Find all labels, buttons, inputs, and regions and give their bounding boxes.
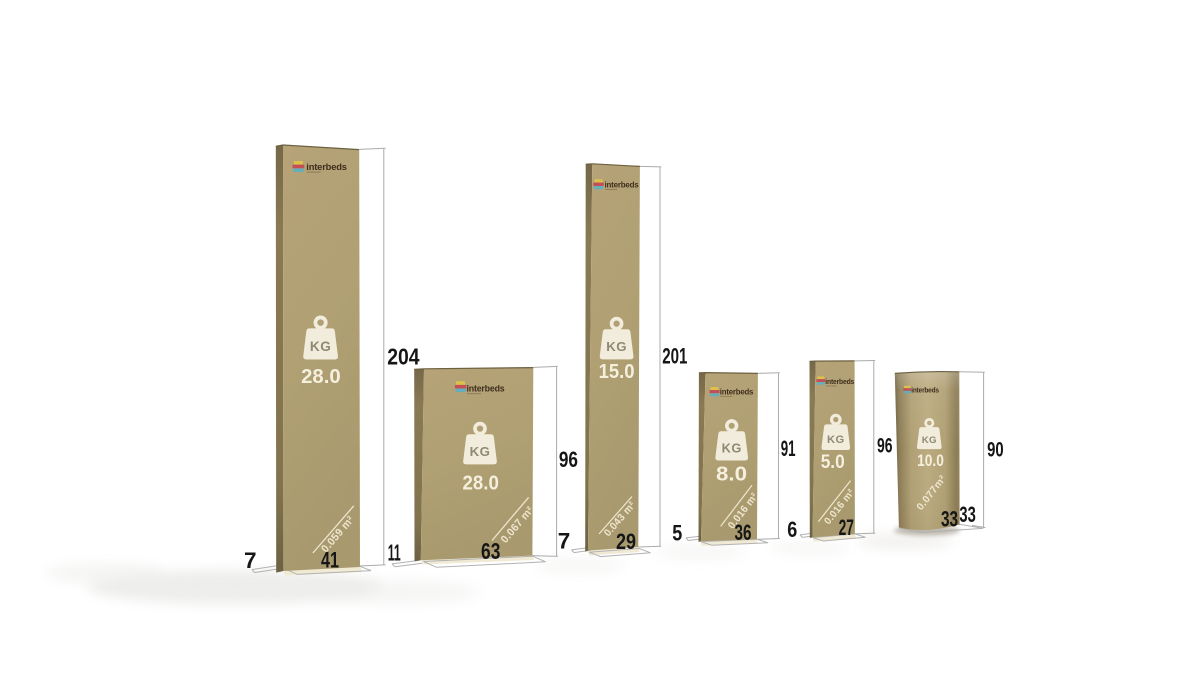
svg-text:6: 6 [787,517,797,542]
svg-text:33: 33 [959,502,975,527]
svg-text:interbeds: interbeds [911,388,939,395]
svg-text:interbeds: interbeds [467,383,505,394]
svg-text:7: 7 [244,548,257,573]
svg-text:201: 201 [662,344,687,369]
svg-text:5: 5 [672,521,682,546]
svg-text:interbeds: interbeds [825,377,854,386]
svg-text:11: 11 [388,540,401,566]
svg-text:interbeds: interbeds [605,181,640,190]
svg-text:96: 96 [877,434,893,458]
svg-text:27: 27 [839,515,854,540]
svg-text:15.0: 15.0 [599,361,635,383]
svg-text:interbeds: interbeds [306,162,347,172]
svg-text:90: 90 [987,437,1004,461]
svg-text:29: 29 [616,529,636,554]
svg-text:7: 7 [558,529,571,554]
svg-text:204: 204 [387,343,419,369]
svg-text:interbeds: interbeds [720,387,754,396]
svg-text:33: 33 [941,507,958,532]
svg-text:8.0: 8.0 [716,464,747,486]
svg-text:96: 96 [559,447,578,472]
svg-text:28.0: 28.0 [301,366,341,388]
svg-text:41: 41 [321,548,339,573]
svg-text:36: 36 [735,520,752,545]
svg-text:91: 91 [781,436,796,461]
svg-text:28.0: 28.0 [463,472,499,495]
svg-text:63: 63 [481,538,500,564]
svg-text:10.0: 10.0 [917,452,944,470]
svg-text:5.0: 5.0 [821,452,845,473]
